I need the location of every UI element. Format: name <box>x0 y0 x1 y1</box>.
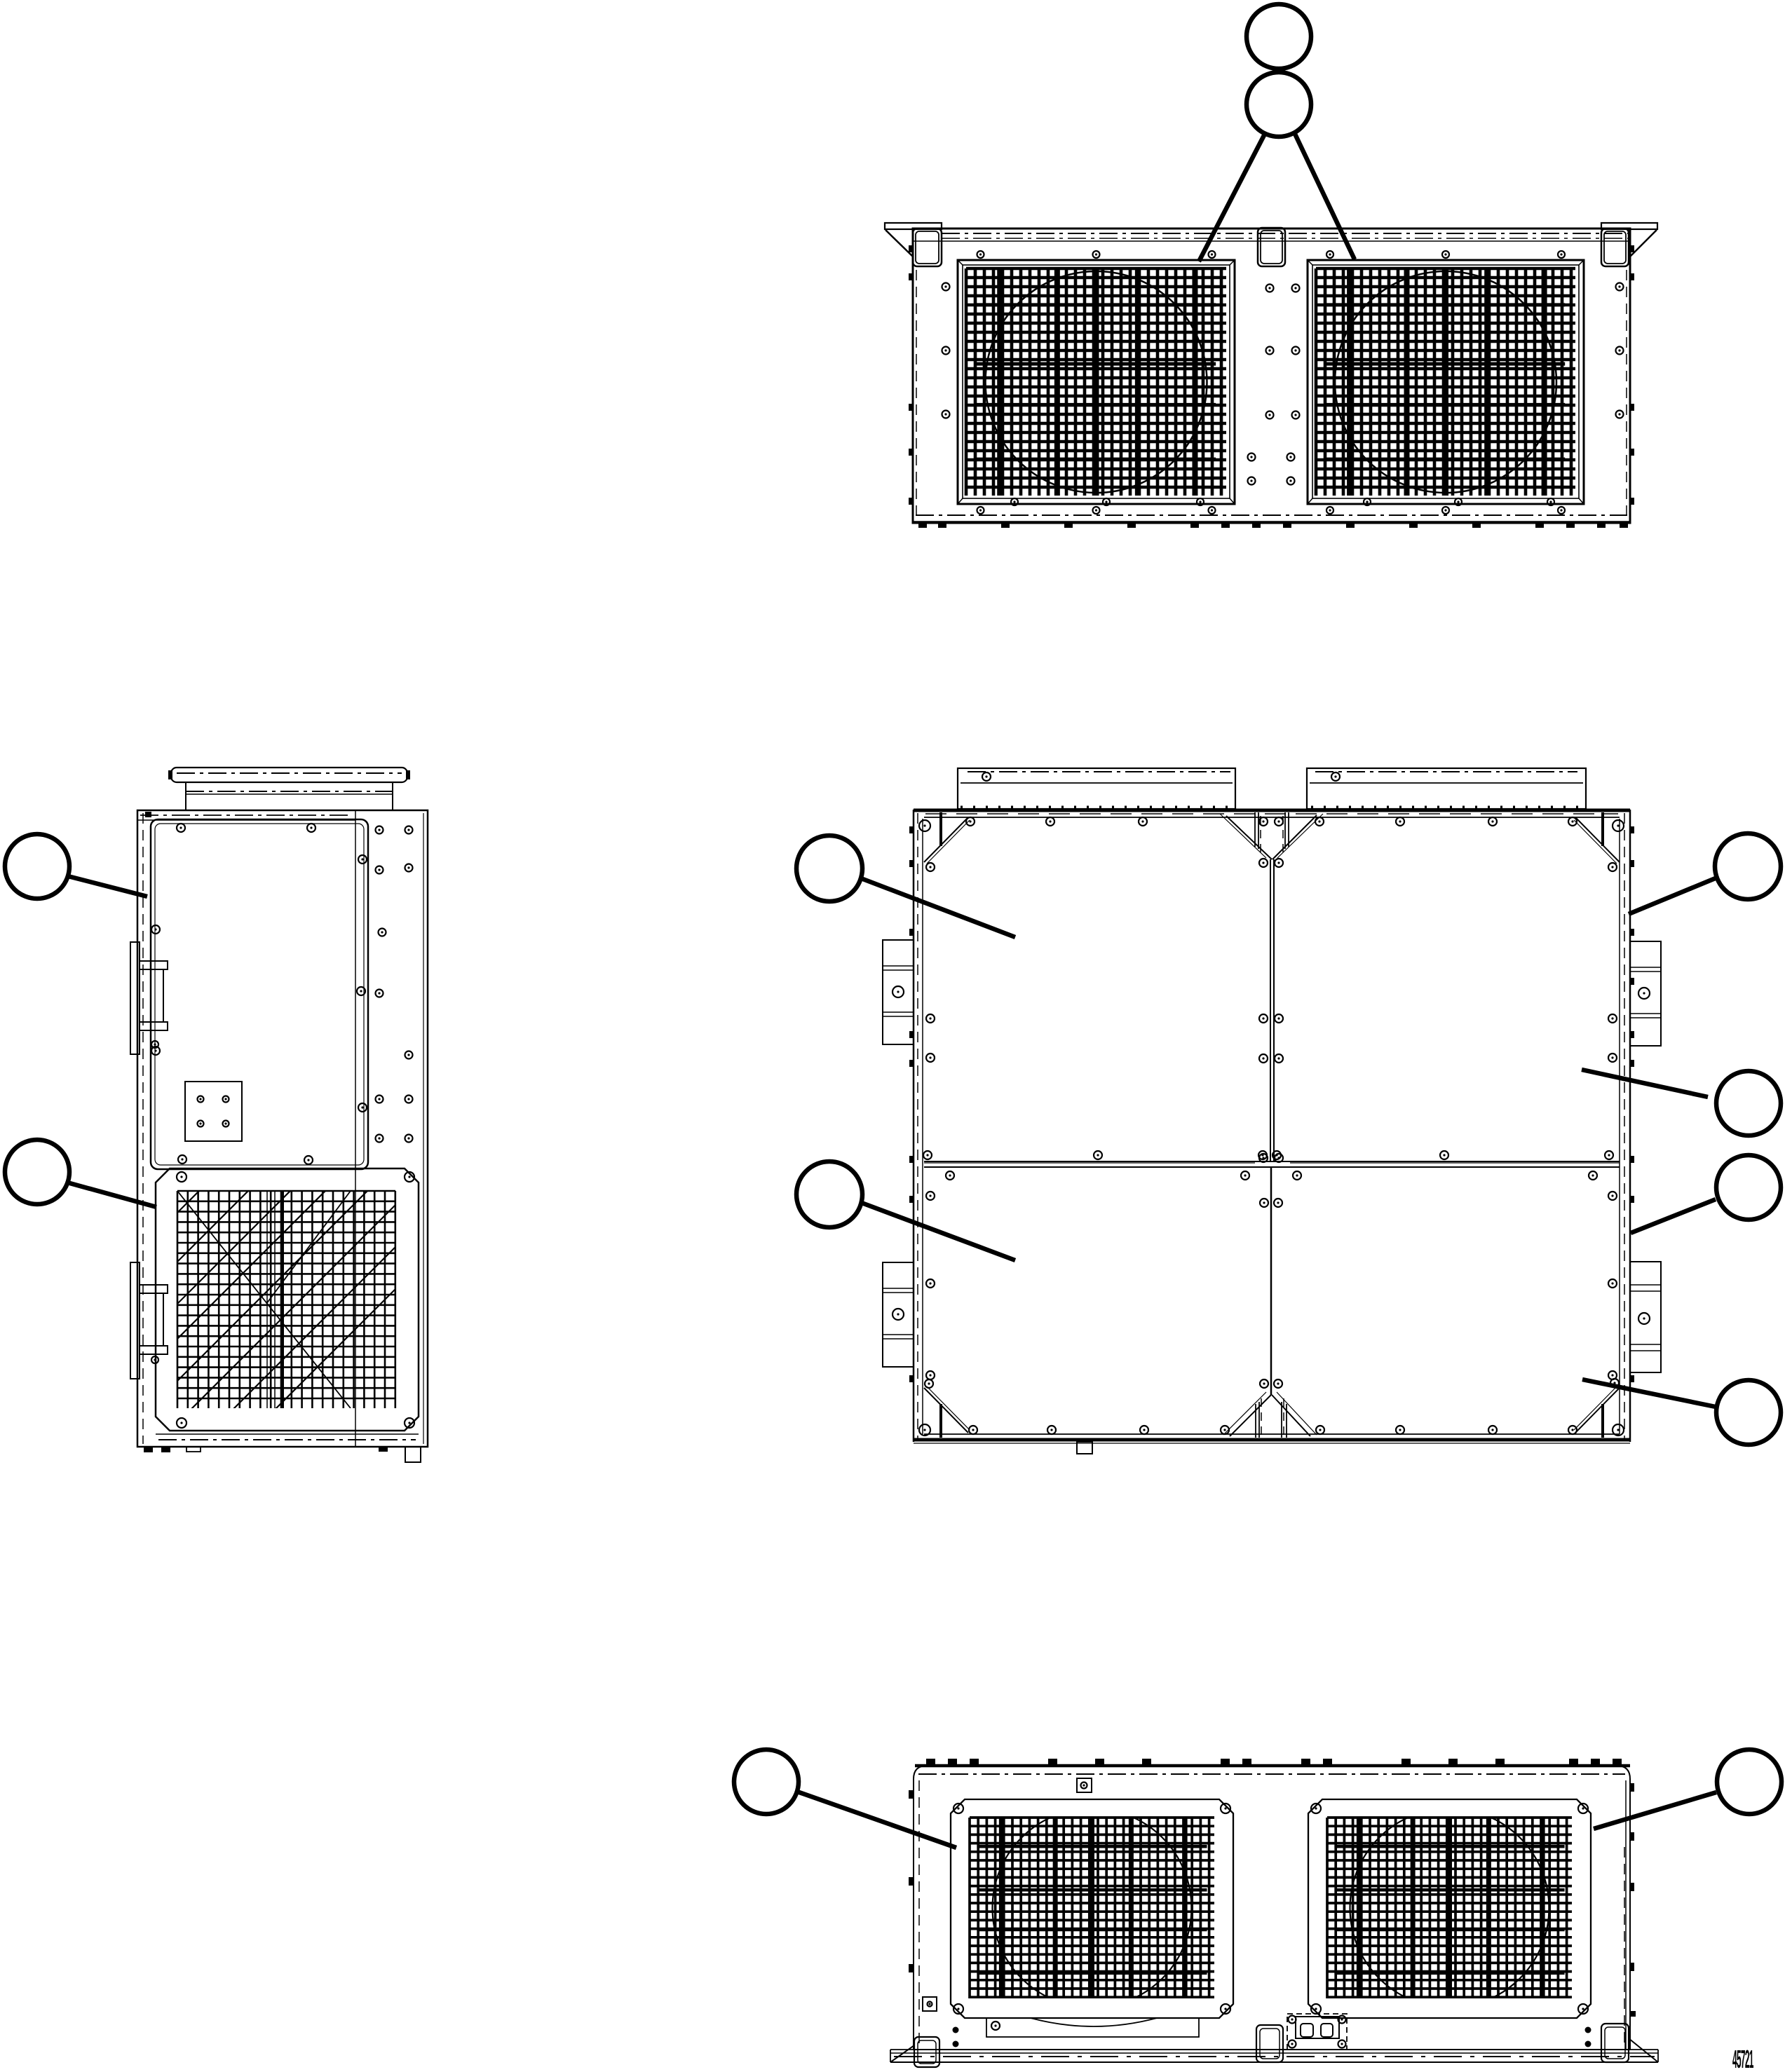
svg-text:45721: 45721 <box>1732 2045 1753 2072</box>
